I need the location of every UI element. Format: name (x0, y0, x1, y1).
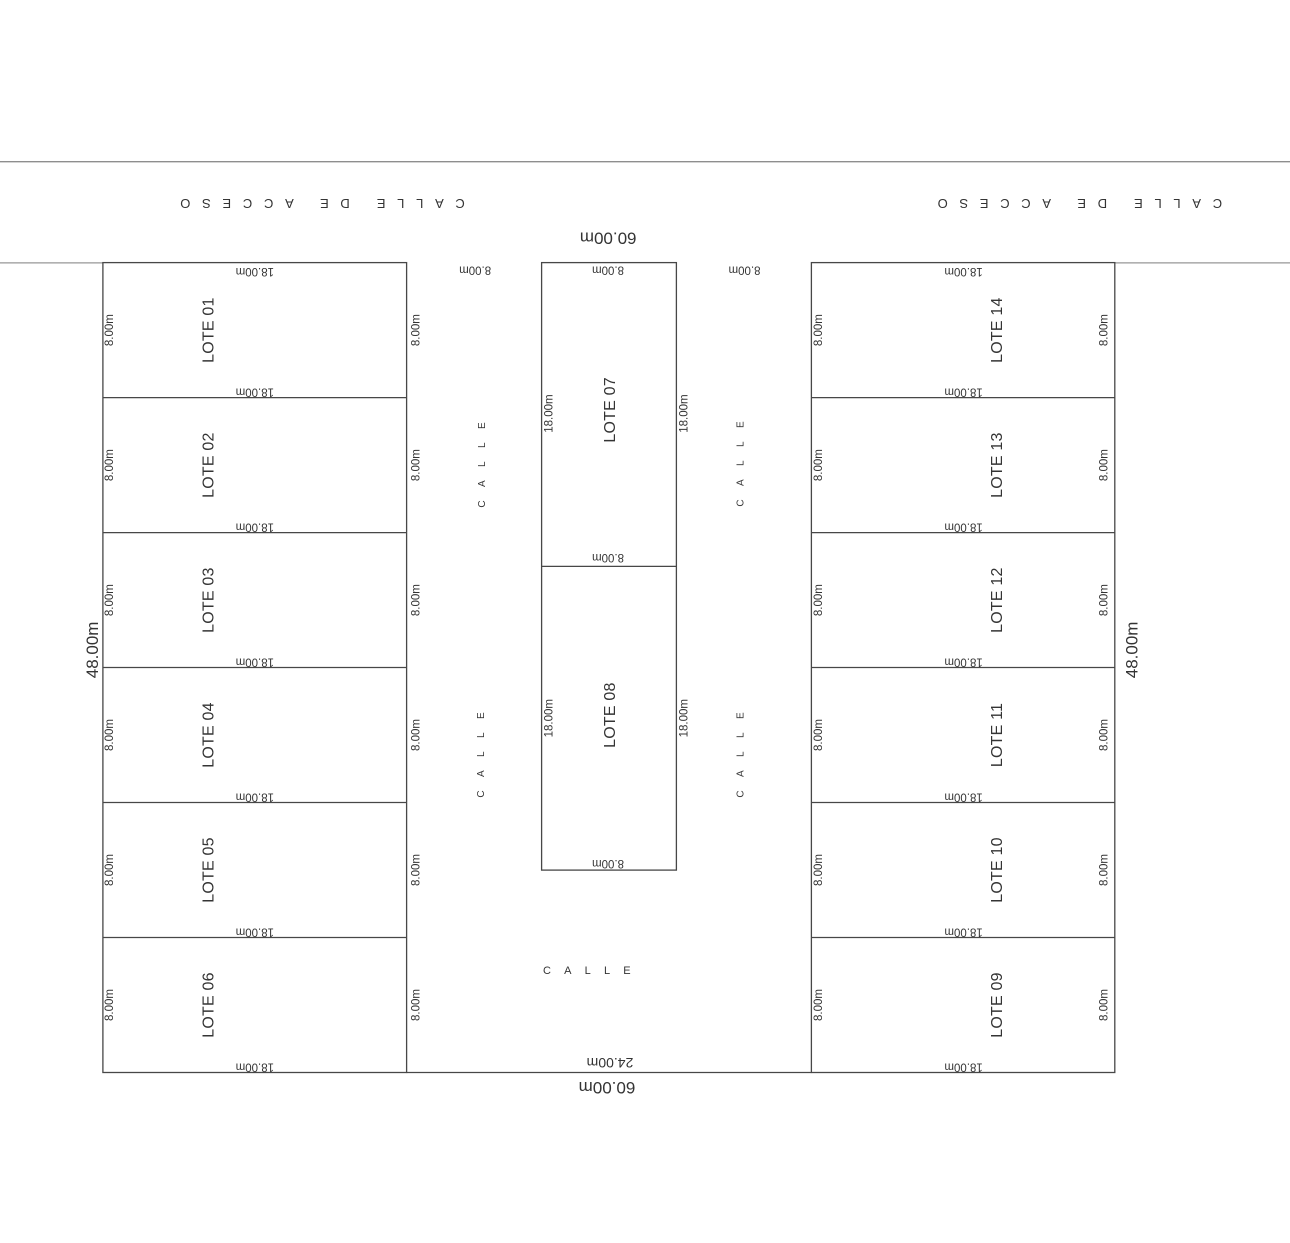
svg-text:8.00m: 8.00m (1099, 989, 1111, 1021)
svg-text:18.00m: 18.00m (236, 265, 274, 277)
svg-text:8.00m: 8.00m (813, 449, 825, 481)
svg-text:CALLE DE ACCESO: CALLE DE ACCESO (169, 196, 465, 211)
svg-text:LOTE 06: LOTE 06 (201, 972, 218, 1037)
svg-text:8.00m: 8.00m (813, 989, 825, 1021)
svg-text:LOTE 07: LOTE 07 (602, 377, 619, 442)
svg-text:8.00m: 8.00m (1099, 719, 1111, 751)
svg-text:8.00m: 8.00m (592, 264, 624, 276)
svg-text:8.00m: 8.00m (813, 854, 825, 886)
svg-text:18.00m: 18.00m (679, 394, 691, 432)
svg-text:18.00m: 18.00m (236, 655, 274, 667)
svg-text:8.00m: 8.00m (104, 449, 116, 481)
svg-text:8.00m: 8.00m (411, 989, 423, 1021)
svg-text:18.00m: 18.00m (236, 790, 274, 802)
svg-text:LOTE 03: LOTE 03 (201, 567, 218, 632)
svg-text:8.00m: 8.00m (592, 551, 624, 563)
svg-text:8.00m: 8.00m (729, 264, 761, 276)
svg-text:18.00m: 18.00m (679, 699, 691, 737)
svg-text:18.00m: 18.00m (944, 790, 982, 802)
svg-text:24.00m: 24.00m (587, 1055, 634, 1071)
svg-text:LOTE 13: LOTE 13 (989, 432, 1006, 497)
svg-text:8.00m: 8.00m (104, 314, 116, 346)
svg-text:18.00m: 18.00m (543, 394, 555, 432)
svg-text:8.00m: 8.00m (592, 857, 624, 869)
svg-text:8.00m: 8.00m (411, 854, 423, 886)
svg-text:CALLE: CALLE (736, 699, 747, 798)
svg-text:18.00m: 18.00m (236, 1060, 274, 1072)
svg-text:8.00m: 8.00m (104, 584, 116, 616)
svg-text:LOTE 11: LOTE 11 (989, 703, 1006, 767)
svg-text:18.00m: 18.00m (944, 265, 982, 277)
svg-text:LOTE 05: LOTE 05 (201, 837, 218, 902)
svg-text:8.00m: 8.00m (411, 584, 423, 616)
svg-text:18.00m: 18.00m (236, 385, 274, 397)
svg-text:8.00m: 8.00m (813, 719, 825, 751)
svg-text:8.00m: 8.00m (1099, 314, 1111, 346)
svg-text:18.00m: 18.00m (944, 1060, 982, 1072)
svg-text:8.00m: 8.00m (411, 449, 423, 481)
svg-text:8.00m: 8.00m (104, 854, 116, 886)
svg-text:18.00m: 18.00m (236, 925, 274, 937)
svg-text:8.00m: 8.00m (411, 719, 423, 751)
svg-text:48.00m: 48.00m (1123, 622, 1142, 679)
svg-text:LOTE 08: LOTE 08 (602, 682, 619, 747)
svg-text:18.00m: 18.00m (944, 385, 982, 397)
svg-text:18.00m: 18.00m (236, 520, 274, 532)
svg-text:8.00m: 8.00m (459, 264, 491, 276)
svg-text:8.00m: 8.00m (411, 314, 423, 346)
svg-text:CALLE: CALLE (476, 699, 487, 798)
svg-text:LOTE 01: LOTE 01 (201, 297, 218, 362)
svg-text:LOTE 12: LOTE 12 (989, 567, 1006, 632)
svg-text:8.00m: 8.00m (813, 314, 825, 346)
svg-text:8.00m: 8.00m (1099, 449, 1111, 481)
svg-text:CALLE: CALLE (736, 408, 747, 507)
svg-text:60.00m: 60.00m (579, 1078, 636, 1097)
svg-text:8.00m: 8.00m (1099, 854, 1111, 886)
svg-text:LOTE 02: LOTE 02 (201, 432, 218, 497)
svg-text:18.00m: 18.00m (944, 520, 982, 532)
svg-text:8.00m: 8.00m (104, 719, 116, 751)
svg-text:8.00m: 8.00m (813, 584, 825, 616)
svg-text:LOTE 04: LOTE 04 (201, 702, 218, 767)
svg-text:60.00m: 60.00m (580, 229, 637, 248)
svg-text:CALLE: CALLE (543, 965, 644, 977)
svg-text:18.00m: 18.00m (944, 655, 982, 667)
svg-text:8.00m: 8.00m (1099, 584, 1111, 616)
svg-text:18.00m: 18.00m (944, 925, 982, 937)
svg-text:LOTE 09: LOTE 09 (989, 972, 1006, 1037)
svg-text:48.00m: 48.00m (83, 622, 102, 679)
svg-text:8.00m: 8.00m (104, 989, 116, 1021)
svg-text:LOTE 14: LOTE 14 (989, 297, 1006, 362)
svg-text:CALLE: CALLE (477, 409, 488, 508)
svg-text:18.00m: 18.00m (543, 699, 555, 737)
svg-text:CALLE DE ACCESO: CALLE DE ACCESO (926, 196, 1222, 211)
svg-text:LOTE 10: LOTE 10 (989, 837, 1006, 902)
